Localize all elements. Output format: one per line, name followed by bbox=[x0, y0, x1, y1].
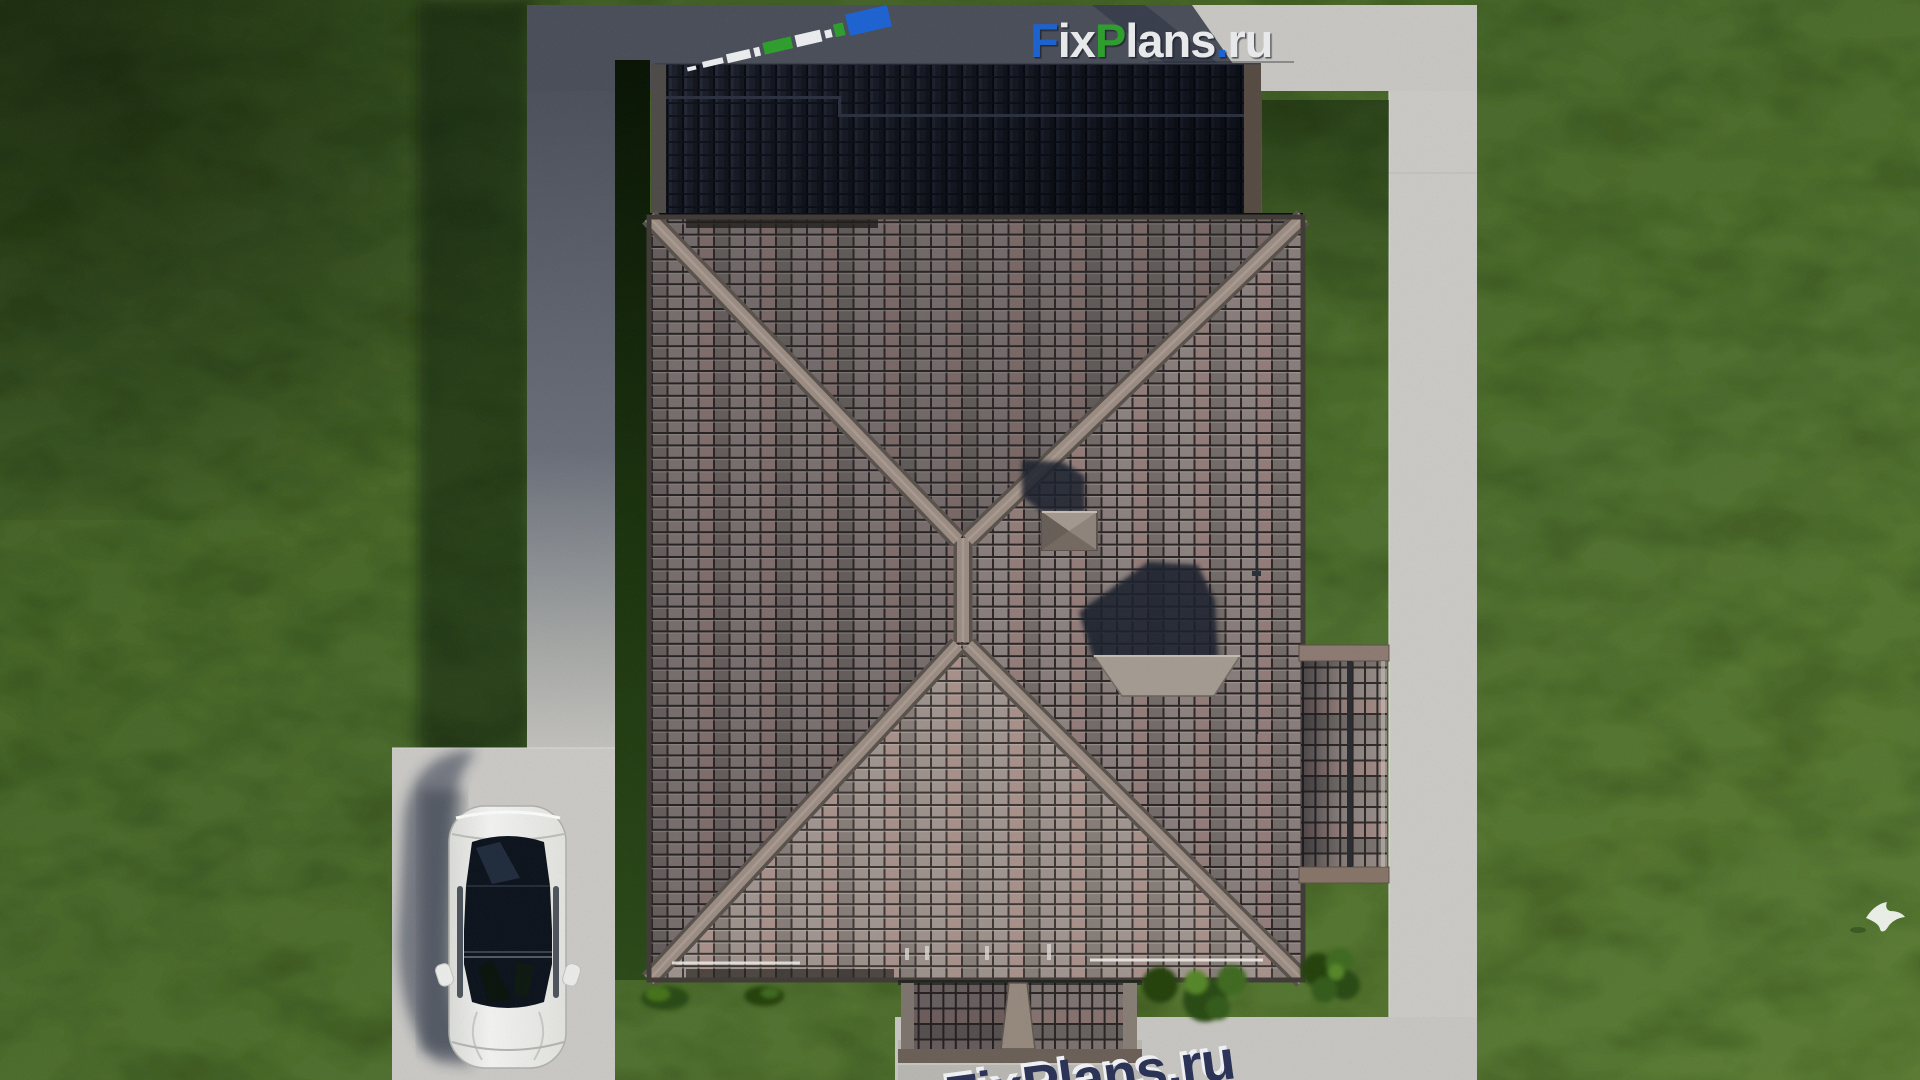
site-plan-render: FixPlans.ru FixPlans.ru FixPlans.ru bbox=[0, 0, 1920, 1080]
grain-overlay-dark bbox=[0, 0, 1920, 1080]
